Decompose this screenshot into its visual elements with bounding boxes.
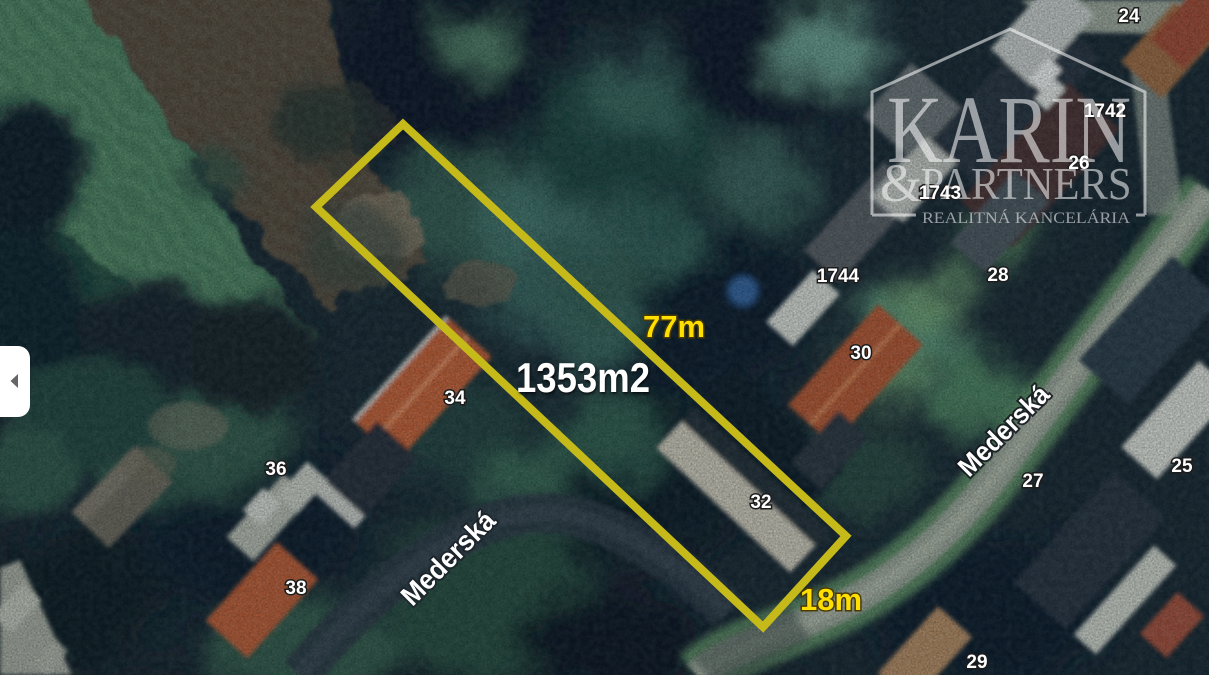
svg-text:REALITNÁ KANCELÁRIA: REALITNÁ KANCELÁRIA — [922, 208, 1130, 227]
svg-text:30: 30 — [850, 343, 871, 364]
svg-text:28: 28 — [987, 265, 1008, 286]
svg-text:&: & — [880, 153, 922, 213]
svg-text:PARTNERS: PARTNERS — [921, 158, 1132, 209]
svg-text:27: 27 — [1022, 471, 1043, 492]
svg-text:32: 32 — [750, 492, 771, 513]
svg-text:29: 29 — [966, 652, 987, 673]
svg-text:1353m2: 1353m2 — [516, 354, 650, 401]
svg-text:1744: 1744 — [817, 266, 860, 287]
svg-text:18m: 18m — [800, 582, 862, 617]
svg-text:24: 24 — [1118, 6, 1140, 27]
svg-text:36: 36 — [265, 459, 286, 480]
svg-text:34: 34 — [444, 388, 466, 409]
svg-text:25: 25 — [1171, 456, 1193, 477]
svg-text:38: 38 — [285, 578, 306, 599]
svg-text:77m: 77m — [643, 309, 705, 344]
